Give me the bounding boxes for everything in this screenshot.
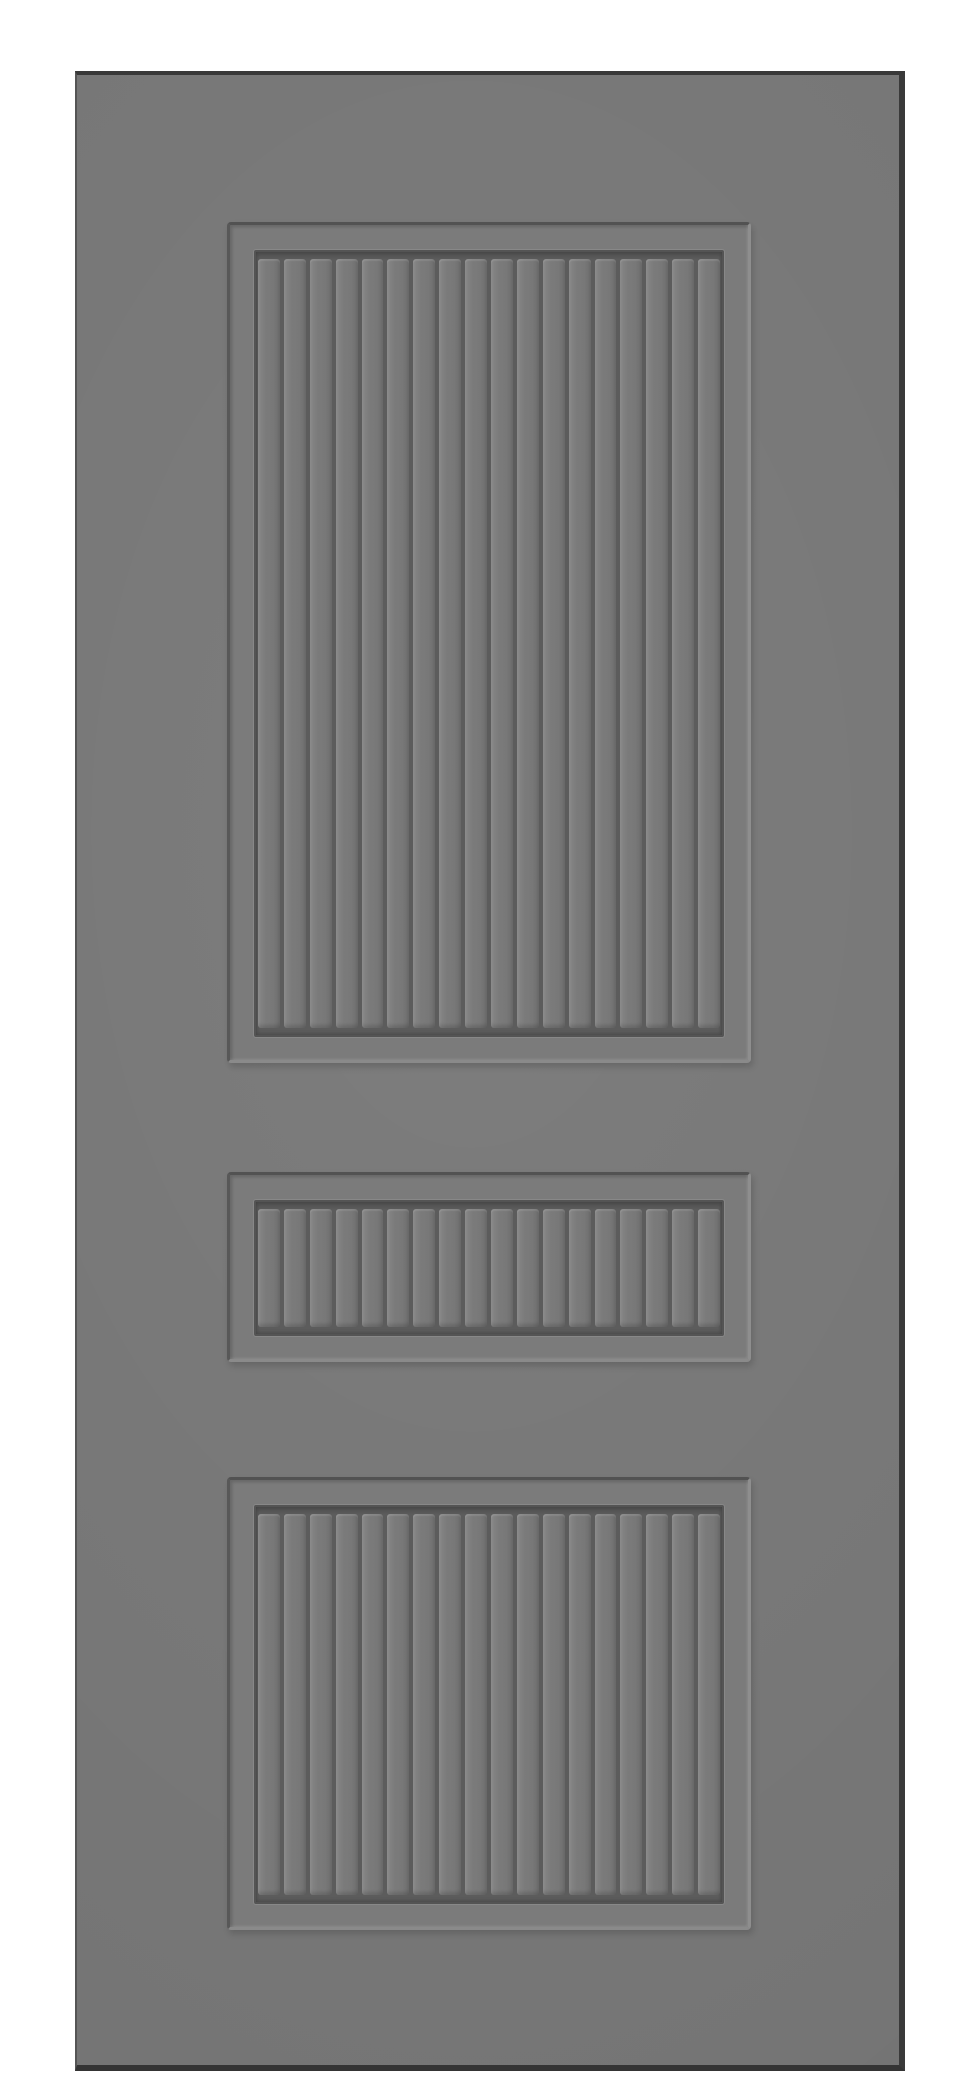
door-slat bbox=[672, 259, 694, 1028]
door-slat bbox=[362, 259, 384, 1028]
door-slat bbox=[413, 259, 435, 1028]
door-slat bbox=[439, 259, 461, 1028]
door-slat bbox=[284, 259, 306, 1028]
slat-field-middle bbox=[254, 1200, 724, 1336]
door-slat bbox=[310, 1514, 332, 1895]
door-slat bbox=[672, 1209, 694, 1327]
door-slat bbox=[543, 1514, 565, 1895]
door-slat bbox=[491, 259, 513, 1028]
door-slat bbox=[491, 1209, 513, 1327]
door-slat bbox=[465, 1209, 487, 1327]
door-slat bbox=[620, 1209, 642, 1327]
door-slat bbox=[646, 1209, 668, 1327]
door-panel-top bbox=[227, 222, 751, 1063]
door-slat bbox=[387, 259, 409, 1028]
door-slat bbox=[517, 1514, 539, 1895]
door-slat bbox=[672, 1514, 694, 1895]
door-slat bbox=[620, 1514, 642, 1895]
door-slat bbox=[595, 259, 617, 1028]
door-slat bbox=[569, 1514, 591, 1895]
door-slat bbox=[465, 259, 487, 1028]
door-slat bbox=[310, 259, 332, 1028]
door-slat bbox=[646, 259, 668, 1028]
door-slat bbox=[258, 259, 280, 1028]
door-slat bbox=[517, 1209, 539, 1327]
door-slat bbox=[336, 1514, 358, 1895]
door-slat bbox=[646, 1514, 668, 1895]
door-slat bbox=[698, 259, 720, 1028]
door-slat bbox=[620, 259, 642, 1028]
door-panel-middle bbox=[227, 1172, 751, 1362]
door-slat bbox=[336, 259, 358, 1028]
door-slat bbox=[517, 259, 539, 1028]
door-slat bbox=[284, 1209, 306, 1327]
door-slat bbox=[387, 1514, 409, 1895]
door-slat bbox=[543, 259, 565, 1028]
slat-field-top bbox=[254, 250, 724, 1037]
door-slab bbox=[75, 71, 905, 2071]
door-slat bbox=[439, 1514, 461, 1895]
door-slat bbox=[569, 1209, 591, 1327]
door-slat bbox=[310, 1209, 332, 1327]
door-slat bbox=[387, 1209, 409, 1327]
image-canvas bbox=[0, 0, 980, 2100]
door-panel-bottom bbox=[227, 1477, 751, 1930]
door-slat bbox=[362, 1209, 384, 1327]
door-slat bbox=[362, 1514, 384, 1895]
door-slat bbox=[698, 1514, 720, 1895]
door-slat bbox=[491, 1514, 513, 1895]
door-slat bbox=[543, 1209, 565, 1327]
door-slat bbox=[258, 1514, 280, 1895]
door-slat bbox=[258, 1209, 280, 1327]
door-slat bbox=[336, 1209, 358, 1327]
door-slat bbox=[569, 259, 591, 1028]
door-slat bbox=[439, 1209, 461, 1327]
door-slat bbox=[698, 1209, 720, 1327]
door-slat bbox=[413, 1514, 435, 1895]
door-slat bbox=[413, 1209, 435, 1327]
slat-field-bottom bbox=[254, 1505, 724, 1904]
door-slat bbox=[465, 1514, 487, 1895]
door-slat bbox=[595, 1209, 617, 1327]
door-slat bbox=[284, 1514, 306, 1895]
door-slat bbox=[595, 1514, 617, 1895]
